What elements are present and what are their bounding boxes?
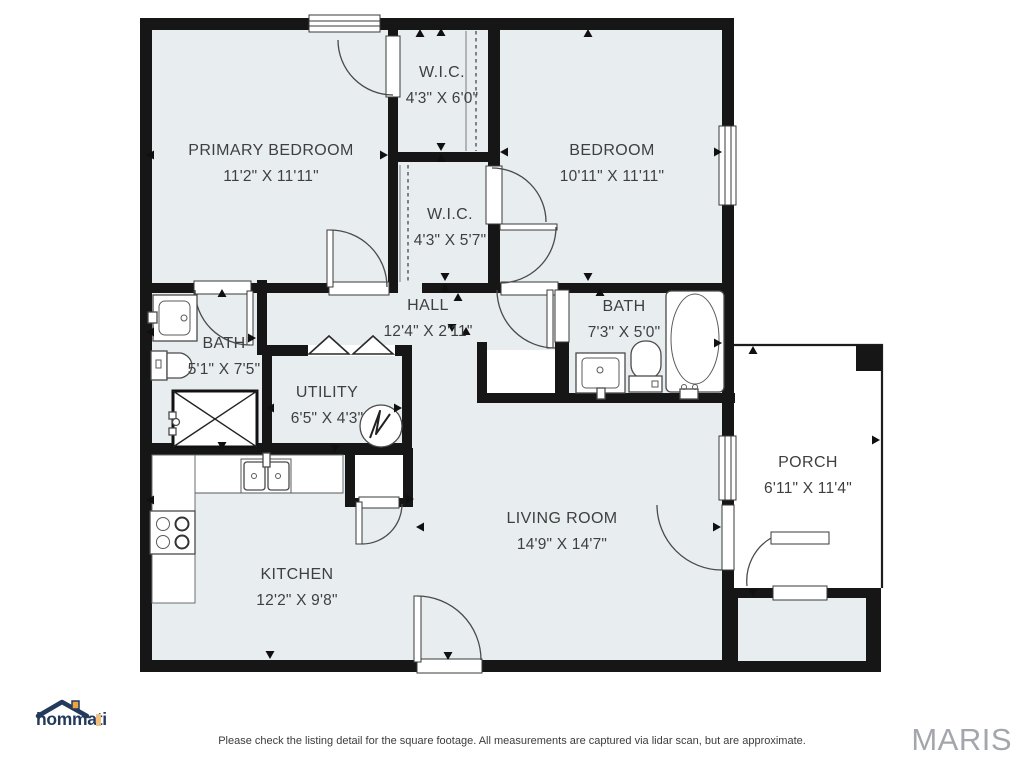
vanity-sink-right: [576, 353, 625, 399]
hall-closet-floor: [487, 350, 555, 393]
room-label-utility: UTILITY 6'5" X 4'3": [291, 380, 364, 432]
room-label-living-room: LIVING ROOM 14'9" X 14'7": [506, 506, 617, 558]
window-living-right: [719, 436, 736, 500]
hommati-logo: hommati: [34, 698, 124, 732]
maris-brand-text: MARIS: [911, 722, 1012, 758]
shower: [169, 391, 257, 447]
window-bedroom-right: [719, 126, 736, 205]
logo-chimney-icon: [72, 701, 79, 709]
disclaimer-text: Please check the listing detail for the …: [218, 735, 806, 747]
window-top: [309, 15, 380, 32]
room-label-bedroom: BEDROOM 10'11" X 11'11": [560, 138, 664, 190]
room-label-primary-bedroom: PRIMARY BEDROOM 11'2" X 11'11": [188, 138, 353, 190]
pantry-closet-floor: [355, 455, 403, 498]
floor-plan-page: PRIMARY BEDROOM 11'2" X 11'11" W.I.C. 4'…: [0, 0, 1024, 768]
room-label-wic-1: W.I.C. 4'3" X 6'0": [406, 60, 479, 112]
room-label-porch: PORCH 6'11" X 11'4": [764, 450, 852, 502]
room-label-wic-2: W.I.C. 4'3" X 5'7": [414, 202, 487, 254]
room-label-bath-left: BATH 5'1" X 7'5": [188, 331, 261, 383]
logo-accent-block: [96, 714, 101, 726]
room-label-hall: HALL 12'4" X 2'11": [383, 293, 472, 345]
room-label-bath-right: BATH 7'3" X 5'0": [588, 294, 661, 346]
floor-plan-drawing: [0, 0, 1024, 768]
toilet-right: [629, 341, 662, 392]
room-label-kitchen: KITCHEN 12'2" X 9'8": [256, 562, 337, 614]
stove: [150, 511, 195, 554]
toilet-left: [151, 351, 192, 380]
storage-floor: [738, 598, 866, 662]
